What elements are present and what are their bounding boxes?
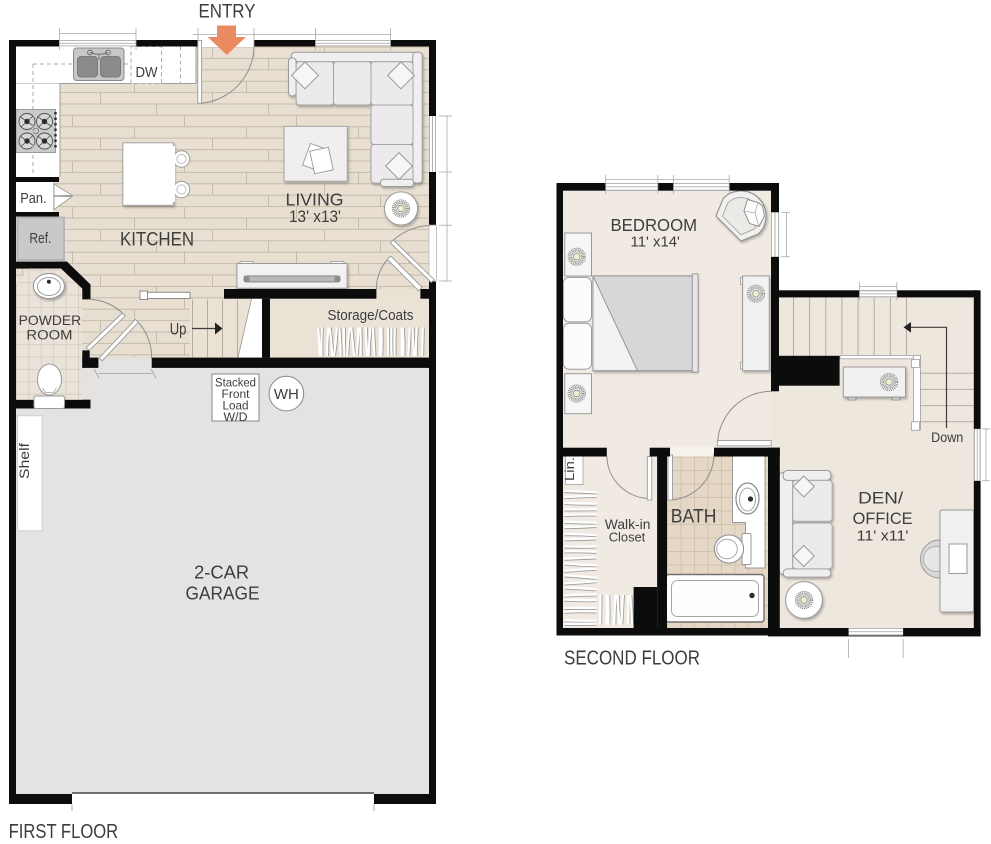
svg-text:W/D: W/D bbox=[224, 410, 248, 424]
svg-text:LIVING: LIVING bbox=[286, 189, 344, 209]
svg-text:11' x11': 11' x11' bbox=[857, 527, 909, 544]
svg-text:OFFICE: OFFICE bbox=[853, 509, 913, 528]
svg-text:WH: WH bbox=[274, 387, 299, 403]
svg-text:ENTRY: ENTRY bbox=[199, 0, 256, 22]
svg-text:POWDER: POWDER bbox=[19, 313, 82, 328]
svg-text:DW: DW bbox=[136, 64, 159, 81]
svg-text:Shelf: Shelf bbox=[16, 443, 32, 479]
svg-text:BEDROOM: BEDROOM bbox=[611, 215, 698, 235]
svg-text:ROOM: ROOM bbox=[26, 327, 72, 342]
svg-text:KITCHEN: KITCHEN bbox=[120, 229, 194, 250]
svg-text:Up: Up bbox=[170, 321, 187, 339]
svg-text:Lin.: Lin. bbox=[562, 457, 577, 481]
svg-text:13' x13': 13' x13' bbox=[289, 208, 341, 226]
svg-text:BATH: BATH bbox=[671, 506, 717, 528]
svg-text:Storage/Coats: Storage/Coats bbox=[328, 307, 414, 324]
svg-text:SECOND FLOOR: SECOND FLOOR bbox=[564, 648, 700, 670]
svg-text:Down: Down bbox=[931, 429, 963, 445]
svg-text:Ref.: Ref. bbox=[29, 231, 51, 247]
svg-text:FIRST FLOOR: FIRST FLOOR bbox=[9, 821, 119, 843]
svg-text:Pan.: Pan. bbox=[20, 191, 46, 207]
svg-text:GARAGE: GARAGE bbox=[186, 583, 260, 604]
svg-text:11' x14': 11' x14' bbox=[631, 235, 681, 251]
svg-text:2-CAR: 2-CAR bbox=[194, 562, 249, 583]
svg-text:Closet: Closet bbox=[609, 530, 646, 545]
svg-text:DEN/: DEN/ bbox=[858, 489, 903, 508]
